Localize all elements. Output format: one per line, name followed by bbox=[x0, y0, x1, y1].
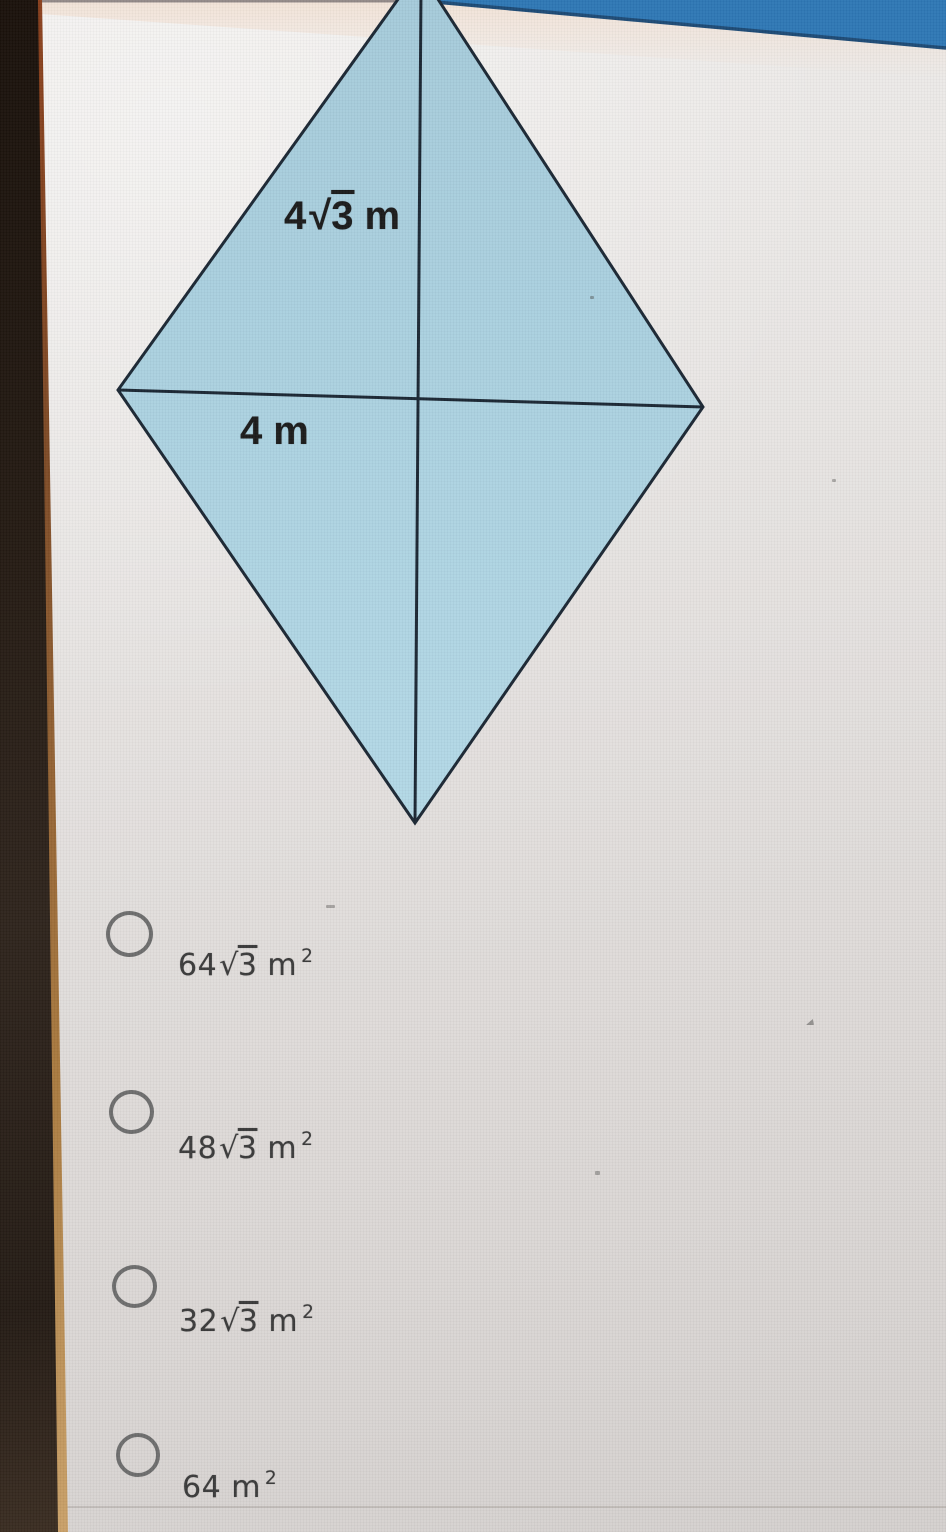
radical-sign: √ bbox=[219, 1131, 239, 1166]
radical-sign: √ bbox=[220, 1304, 240, 1339]
option-2-coefficient: 48 bbox=[178, 1131, 217, 1166]
option-3-radicand: 3 bbox=[239, 1304, 259, 1339]
upper-measurement-label: 4√3m bbox=[284, 194, 401, 239]
option-3-unit: m bbox=[268, 1304, 298, 1339]
kite-shape bbox=[118, 0, 703, 823]
dust-speck bbox=[326, 905, 335, 908]
lower-label-unit: m bbox=[273, 409, 310, 453]
option-3-exponent: 2 bbox=[302, 1302, 314, 1323]
option-1-exponent: 2 bbox=[301, 946, 313, 967]
radio-button-option-2[interactable] bbox=[109, 1090, 154, 1134]
option-1-coefficient: 64 bbox=[178, 948, 217, 983]
radio-button-option-3[interactable] bbox=[112, 1265, 157, 1308]
dust-speck bbox=[595, 1171, 600, 1175]
screen: 4√3m 4m 64√3m2 48√3m2 32√3m2 64m2 bbox=[0, 0, 946, 1532]
option-1-radicand: 3 bbox=[238, 948, 258, 983]
radical-sign: √ bbox=[219, 948, 239, 983]
option-3-coefficient: 32 bbox=[179, 1304, 218, 1339]
screen-artifact-line bbox=[60, 1506, 946, 1508]
option-4-unit: m bbox=[231, 1470, 261, 1505]
upper-label-unit: m bbox=[364, 194, 401, 238]
radio-button-option-1[interactable] bbox=[106, 911, 153, 957]
option-3-label[interactable]: 32√3m2 bbox=[179, 1304, 314, 1339]
radical-sign: √ bbox=[309, 194, 332, 238]
radio-button-option-4[interactable] bbox=[116, 1433, 160, 1477]
option-2-radicand: 3 bbox=[238, 1131, 258, 1166]
lower-label-value: 4 bbox=[240, 409, 263, 453]
option-2-exponent: 2 bbox=[301, 1129, 313, 1150]
option-2-label[interactable]: 48√3m2 bbox=[178, 1131, 313, 1166]
lower-measurement-label: 4m bbox=[240, 409, 310, 454]
option-1-unit: m bbox=[267, 948, 297, 983]
option-1-label[interactable]: 64√3m2 bbox=[178, 948, 313, 983]
option-4-label[interactable]: 64m2 bbox=[182, 1470, 277, 1505]
option-4-exponent: 2 bbox=[265, 1468, 277, 1489]
dust-speck bbox=[590, 296, 594, 299]
option-4-coefficient: 64 bbox=[182, 1470, 221, 1505]
dust-speck bbox=[832, 479, 836, 482]
option-2-unit: m bbox=[267, 1131, 297, 1166]
upper-label-radicand: 3 bbox=[331, 194, 354, 238]
upper-label-coefficient: 4 bbox=[284, 194, 307, 238]
